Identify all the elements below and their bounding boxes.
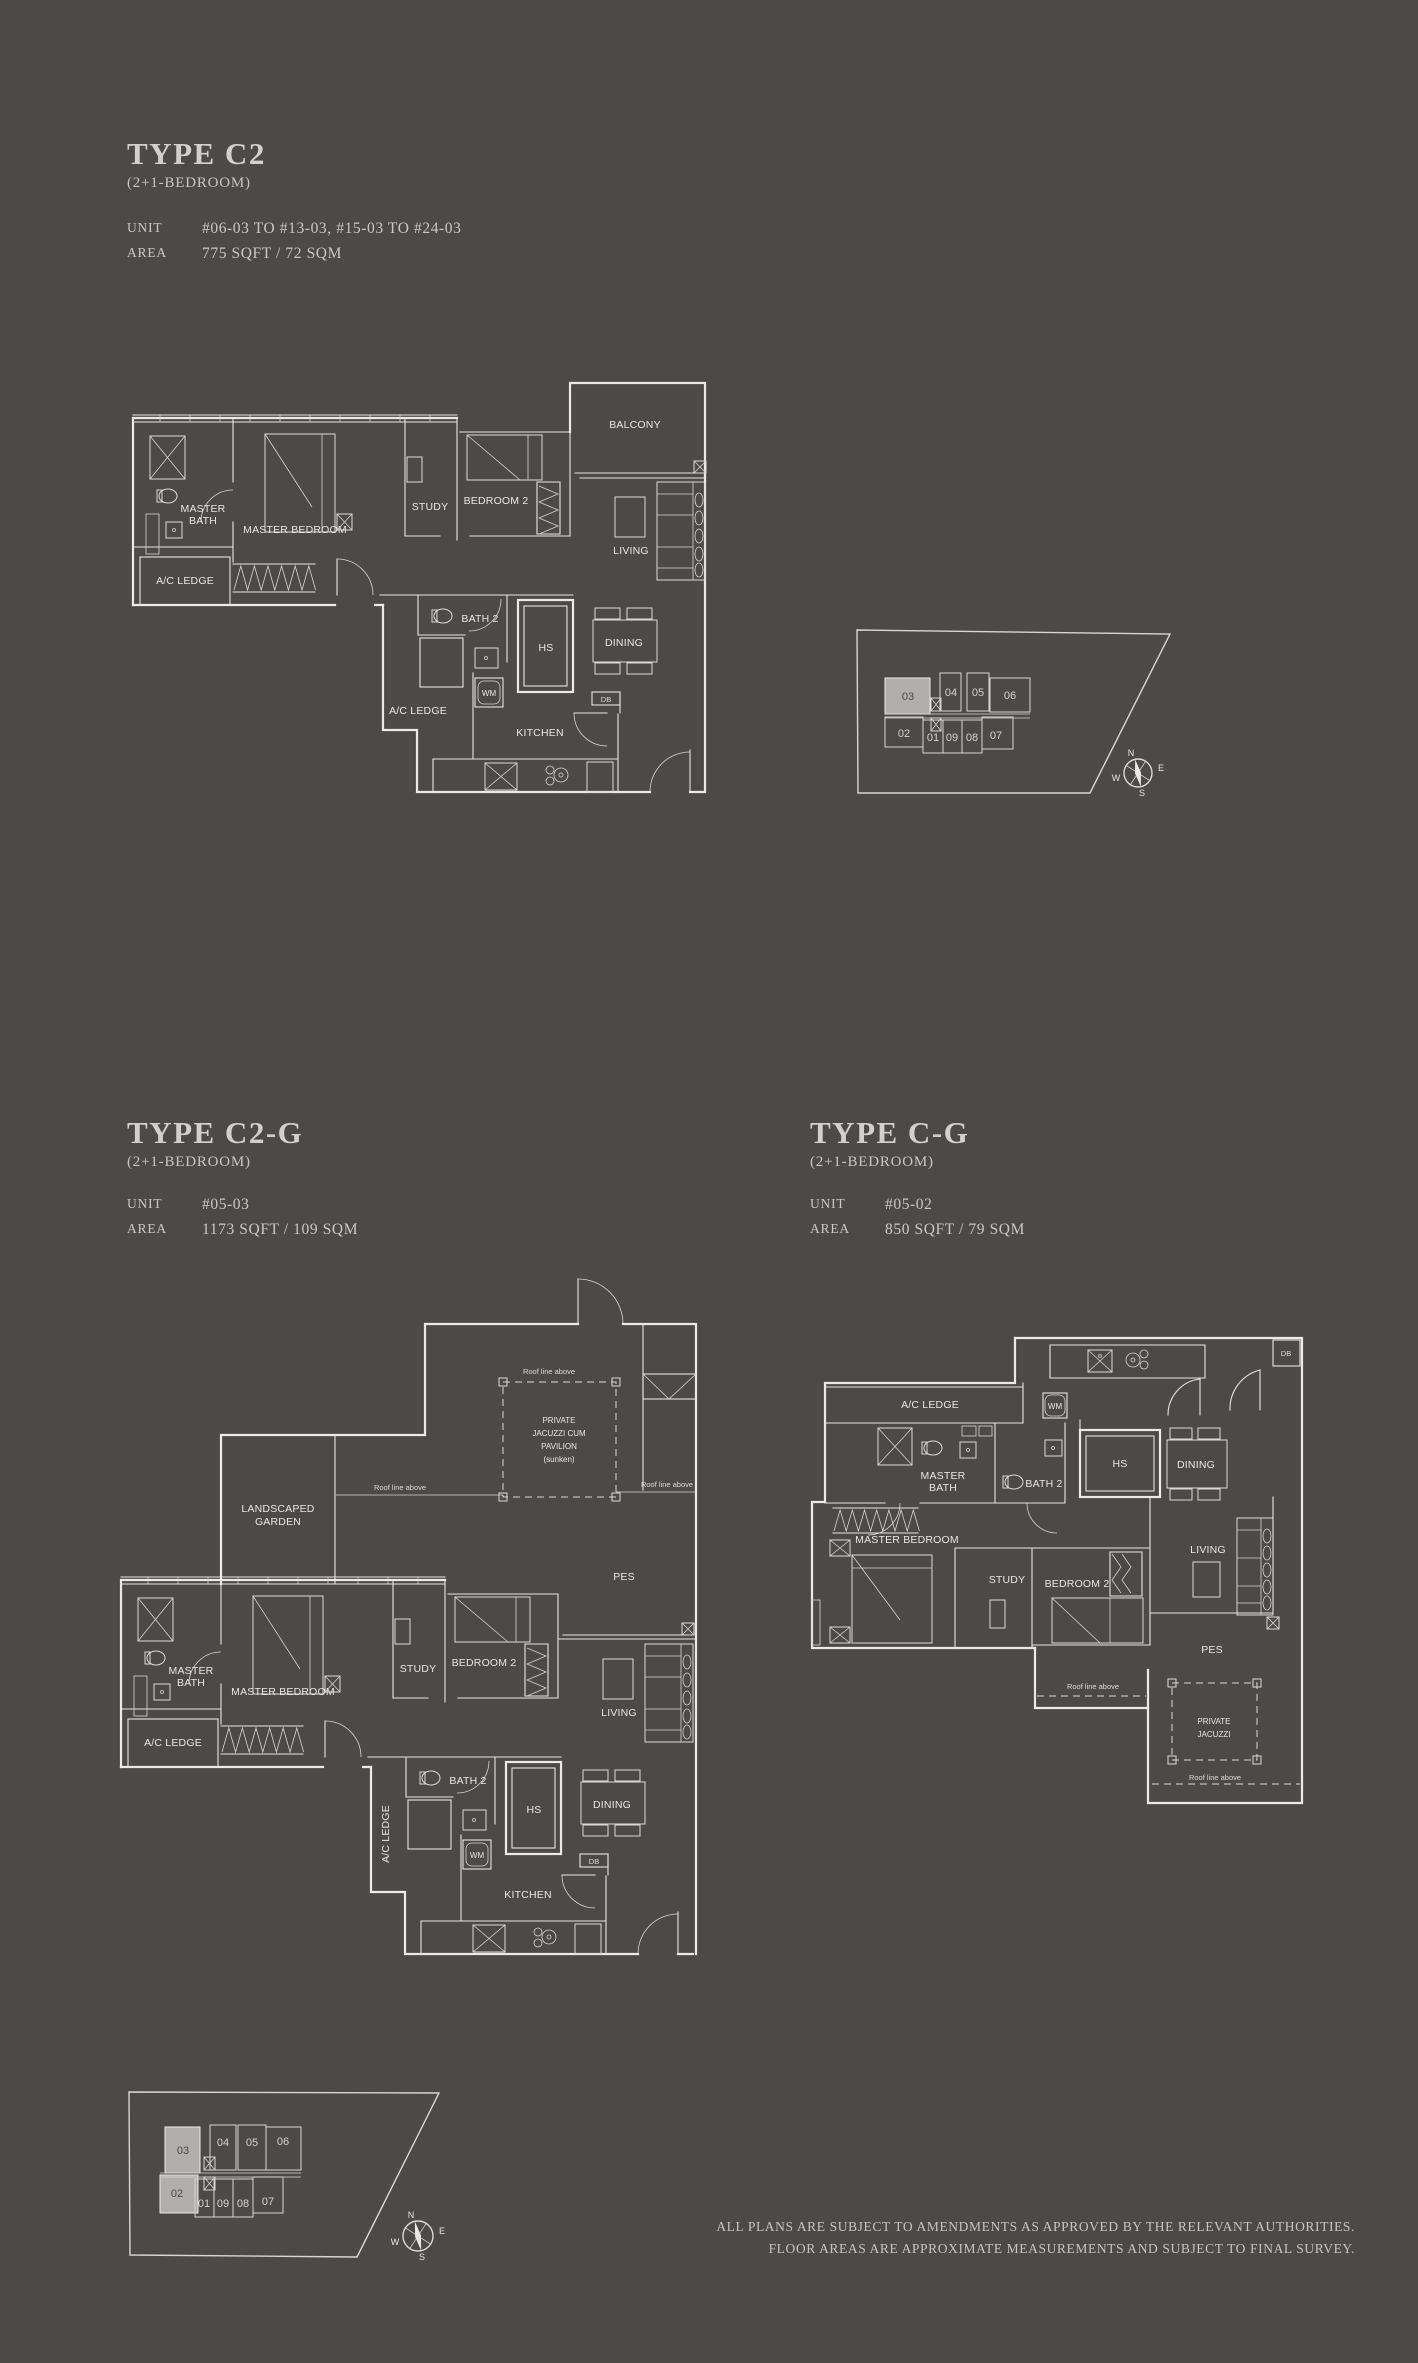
type-c2g-subtitle: (2+1-BEDROOM)	[127, 1154, 303, 1171]
type-cg-subtitle: (2+1-BEDROOM)	[810, 1154, 969, 1171]
page-title: TYPE C2	[127, 136, 266, 172]
svg-text:PAVILION: PAVILION	[541, 1442, 577, 1451]
keyplan1-unit-06: 06	[1004, 690, 1016, 702]
roof-line-label: Roof line above	[523, 1367, 575, 1376]
room-label-pes: PES	[1201, 1644, 1223, 1656]
room-label-hs: HS	[527, 1804, 542, 1816]
type-c2-unit-area: UNIT #06-03 TO #13-03, #15-03 TO #24-03 …	[127, 220, 462, 270]
roof-line-label: Roof line above	[1067, 1682, 1119, 1691]
disclaimer: ALL PLANS ARE SUBJECT TO AMENDMENTS AS A…	[716, 2216, 1355, 2261]
room-label-kitchen: KITCHEN	[504, 1889, 552, 1901]
keyplan1-unit-07: 07	[990, 730, 1002, 742]
room-label-wm: WM	[470, 1851, 485, 1860]
unit-label: UNIT	[127, 220, 202, 238]
keyplan2-unit-05: 05	[246, 2137, 258, 2149]
compass-n: N	[1128, 748, 1135, 758]
room-label-balcony: BALCONY	[609, 419, 661, 431]
unit-value: #06-03 TO #13-03, #15-03 TO #24-03	[202, 220, 462, 238]
room-label-master-bath: MASTER	[181, 503, 226, 515]
floor-plan-cg: DB A/C LEDGE WM MASTER BATH BATH 2 HS DI…	[800, 1290, 1340, 1870]
compass-s: S	[419, 2252, 425, 2262]
key-plan-2: 03 04 05 06 02 01 09 08 07 N E W S	[120, 2085, 455, 2275]
type-c2g-title-block: TYPE C2-G (2+1-BEDROOM)	[127, 1115, 303, 1171]
compass-e: E	[1158, 763, 1164, 773]
room-label-kitchen: KITCHEN	[516, 727, 564, 739]
floor-plan-c2: MASTER BATH A/C LEDGE MASTER BEDROOM STU…	[130, 362, 715, 802]
keyplan2-unit-02: 02	[171, 2188, 183, 2200]
room-label-ac-ledge: A/C LEDGE	[901, 1399, 959, 1411]
type-c2g-title: TYPE C2-G	[127, 1115, 303, 1151]
room-label-bath2: BATH 2	[1025, 1478, 1062, 1490]
keyplan2-unit-06: 06	[277, 2136, 289, 2148]
type-cg-title-block: TYPE C-G (2+1-BEDROOM)	[810, 1115, 969, 1171]
keyplan1-unit-05: 05	[972, 687, 984, 699]
roof-line-label: Roof line above	[641, 1480, 693, 1489]
room-label-dining: DINING	[593, 1799, 631, 1811]
room-label-dining: DINING	[1177, 1459, 1215, 1471]
svg-text:JACUZZI: JACUZZI	[1198, 1730, 1231, 1739]
roof-line-label: Roof line above	[374, 1483, 426, 1492]
keyplan1-unit-04: 04	[945, 687, 957, 699]
keyplan2-unit-08: 08	[237, 2198, 249, 2210]
room-label-db: DB	[1281, 1349, 1291, 1358]
room-label-study: STUDY	[989, 1574, 1026, 1586]
roof-line-label: Roof line above	[1189, 1773, 1241, 1782]
room-label-bedroom2: BEDROOM 2	[464, 495, 529, 507]
room-label-master-bath: MASTER	[169, 1665, 214, 1677]
room-label-master-bedroom: MASTER BEDROOM	[231, 1686, 335, 1698]
room-label-ac-ledge-bottom: A/C LEDGE	[380, 1805, 392, 1863]
type-c2-title-block: TYPE C2 (2+1-BEDROOM)	[127, 136, 266, 192]
brochure-page: TYPE C2 (2+1-BEDROOM) UNIT #06-03 TO #13…	[0, 0, 1418, 2363]
compass-w: W	[1112, 773, 1121, 783]
keyplan1-unit-01: 01	[927, 732, 939, 744]
room-label-wm: WM	[1048, 1402, 1063, 1411]
type-cg-unit-area: UNIT #05-02 AREA 850 SQFT / 79 SQM	[810, 1196, 1025, 1246]
room-label-study: STUDY	[412, 501, 449, 513]
keyplan2-unit-04: 04	[217, 2137, 229, 2149]
room-label-master-bedroom: MASTER BEDROOM	[243, 524, 347, 536]
room-label-living: LIVING	[613, 545, 649, 557]
room-label-bath2: BATH 2	[461, 613, 498, 625]
room-label-hs: HS	[539, 642, 554, 654]
keyplan2-unit-09: 09	[217, 2198, 229, 2210]
type-c2g-unit-area: UNIT #05-03 AREA 1173 SQFT / 109 SQM	[127, 1196, 358, 1246]
keyplan1-unit-09: 09	[946, 732, 958, 744]
compass-n: N	[408, 2210, 415, 2220]
room-label-bedroom2: BEDROOM 2	[1045, 1578, 1110, 1590]
room-label-living: LIVING	[601, 1707, 637, 1719]
room-label-wm: WM	[482, 689, 497, 698]
svg-text:GARDEN: GARDEN	[255, 1516, 301, 1528]
room-label-bedroom2: BEDROOM 2	[452, 1657, 517, 1669]
room-label-db: DB	[589, 1857, 599, 1866]
compass-w: W	[391, 2237, 400, 2247]
room-label-master-bedroom: MASTER BEDROOM	[855, 1534, 959, 1546]
compass-s: S	[1139, 788, 1145, 798]
room-label-pes: PES	[613, 1571, 635, 1583]
room-label-bath2: BATH 2	[449, 1775, 486, 1787]
room-label-master-bath: MASTER	[921, 1470, 966, 1482]
room-label-jacuzzi: PRIVATE	[1197, 1717, 1230, 1726]
svg-text:BATH: BATH	[177, 1677, 205, 1689]
disclaimer-line-2: FLOOR AREAS ARE APPROXIMATE MEASUREMENTS…	[716, 2238, 1355, 2260]
room-label-dining: DINING	[605, 637, 643, 649]
svg-text:JACUZZI CUM: JACUZZI CUM	[532, 1429, 586, 1438]
keyplan2-unit-07: 07	[262, 2196, 274, 2208]
room-label-study: STUDY	[400, 1663, 437, 1675]
keyplan1-unit-08: 08	[966, 732, 978, 744]
floor-plan-c2g: Roof line above Roof line above Roof lin…	[118, 1262, 703, 1957]
room-label-ac-ledge-bottom: A/C LEDGE	[389, 705, 447, 717]
area-value: 775 SQFT / 72 SQM	[202, 245, 342, 263]
room-label-jacuzzi: PRIVATE	[542, 1416, 575, 1425]
compass-icon: N E W S	[391, 2210, 445, 2262]
keyplan1-unit-03: 03	[902, 691, 914, 703]
svg-text:(sunken): (sunken)	[543, 1455, 574, 1464]
room-label-ac-ledge-left: A/C LEDGE	[144, 1737, 202, 1749]
room-label-living: LIVING	[1190, 1544, 1226, 1556]
svg-text:BATH: BATH	[929, 1482, 957, 1494]
keyplan1-unit-02: 02	[898, 728, 910, 740]
room-label-hs: HS	[1113, 1458, 1128, 1470]
keyplan2-unit-03: 03	[177, 2145, 189, 2157]
disclaimer-line-1: ALL PLANS ARE SUBJECT TO AMENDMENTS AS A…	[716, 2216, 1355, 2238]
keyplan2-unit-01: 01	[198, 2198, 210, 2210]
type-c2-subtitle: (2+1-BEDROOM)	[127, 175, 266, 192]
room-label-garden: LANDSCAPED	[241, 1503, 314, 1515]
key-plan-1: 03 04 05 06 02 01 09 08 07 N E W S	[845, 610, 1180, 810]
room-label-ac-ledge-left: A/C LEDGE	[156, 575, 214, 587]
svg-text:BATH: BATH	[189, 515, 217, 527]
compass-icon: N E W S	[1112, 748, 1164, 798]
compass-e: E	[439, 2226, 445, 2236]
area-label: AREA	[127, 245, 202, 263]
room-label-db: DB	[601, 695, 611, 704]
type-cg-title: TYPE C-G	[810, 1115, 969, 1151]
